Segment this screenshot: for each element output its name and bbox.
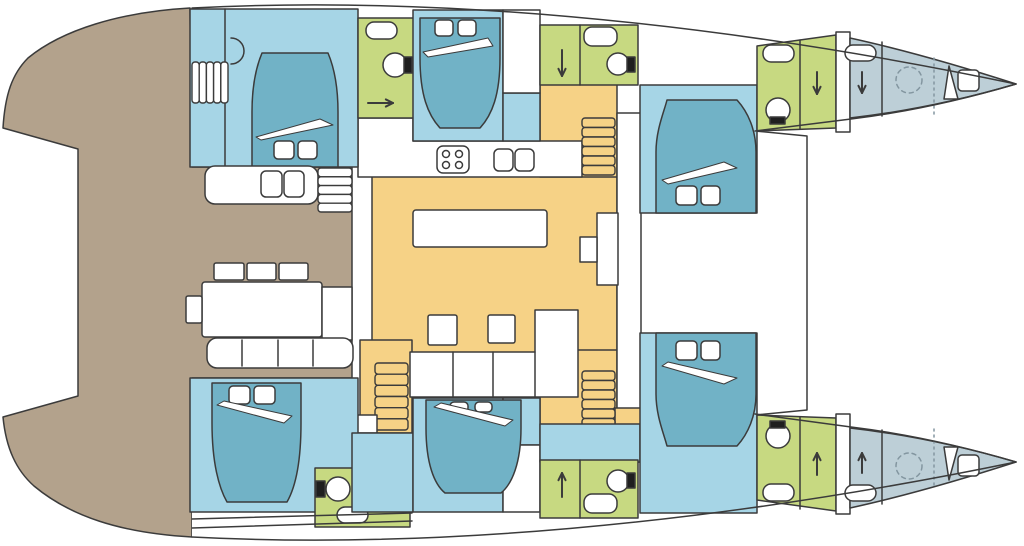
dinette-chair — [247, 263, 276, 280]
dinette-bench — [207, 338, 353, 368]
pillow-icon — [274, 141, 294, 159]
pillow-icon — [676, 186, 697, 205]
dinette-cabinet — [322, 287, 352, 340]
stairs-starboard-aft-tread — [375, 408, 408, 419]
cockpit-steps-tread — [318, 177, 352, 186]
landing-floor — [540, 424, 640, 462]
toilet-tank-icon — [404, 57, 412, 73]
stairs-starboard-fwd-tread — [582, 409, 615, 419]
cockpit-steps-tread — [318, 168, 352, 177]
transom-steps-tread — [206, 62, 213, 103]
salon-table — [413, 210, 547, 247]
closet — [503, 10, 540, 93]
bridgedeck-front-edge — [755, 131, 807, 415]
stairs-port-hull — [582, 118, 615, 175]
pillow-icon — [298, 141, 317, 159]
cockpit-steps-tread — [318, 194, 352, 203]
burner-icon — [456, 162, 463, 169]
mid-wall — [617, 113, 641, 410]
dinette-chair — [186, 296, 202, 323]
stairs-starboard-aft-tread — [375, 363, 408, 374]
stairs-port-hull-tread — [582, 118, 615, 128]
transom-steps-tread — [221, 62, 228, 103]
bench-cushion — [284, 171, 304, 197]
pillow-icon — [435, 20, 453, 36]
pillow-icon — [701, 186, 720, 205]
sink-icon — [763, 484, 794, 501]
pillow-icon — [475, 402, 492, 412]
catamaran-floor-plan — [0, 0, 1024, 546]
sink-icon — [584, 494, 617, 513]
stairs-port-hull-tread — [582, 137, 615, 147]
bench-cushion — [261, 171, 282, 197]
toilet-tank-icon — [770, 421, 785, 428]
toilet-tank-icon — [770, 117, 785, 124]
burner-icon — [443, 151, 450, 158]
transom-steps-tread — [199, 62, 206, 103]
dinette-chair — [279, 263, 308, 280]
stairs-starboard-fwd-tread — [582, 381, 615, 391]
dinette-chair — [214, 263, 244, 280]
corridor-stbd — [352, 433, 413, 512]
toilet-icon — [607, 470, 629, 492]
cockpit-steps-tread — [318, 203, 352, 212]
stairs-starboard-fwd — [582, 371, 615, 428]
nav-seat — [580, 237, 597, 262]
transom-steps-tread — [214, 62, 221, 103]
stairs-starboard-aft-tread — [375, 385, 408, 396]
pillow-icon — [701, 341, 720, 360]
cabin-fwd-port-floor — [503, 93, 540, 141]
stairs-port-hull-tread — [582, 156, 615, 166]
sink-icon — [763, 45, 794, 62]
salon-chair — [428, 315, 457, 345]
stairs-starboard-aft-tread — [375, 419, 408, 430]
stair-foot-pad — [357, 415, 377, 433]
stairs-starboard-fwd-tread — [582, 390, 615, 400]
nav-desk — [597, 213, 618, 285]
toilet-tank-icon — [627, 473, 635, 488]
salon-chair — [488, 315, 515, 343]
galley-sink-icon — [515, 149, 534, 171]
pillow-icon — [229, 386, 250, 404]
catamaran-deck-floor-plan — [0, 0, 1024, 546]
stairs-starboard-aft-tread — [375, 374, 408, 385]
galley-sink-icon — [494, 149, 513, 171]
sink-icon — [584, 27, 617, 46]
bed-aft-port — [252, 53, 338, 167]
stairs-starboard-aft-tread — [375, 397, 408, 408]
stairs-starboard-fwd-tread — [582, 400, 615, 410]
stairs-starboard-aft — [375, 363, 408, 430]
cockpit-steps — [318, 168, 352, 212]
toilet-icon — [326, 477, 350, 501]
transom-steps — [192, 62, 228, 103]
stairs-port-hull-tread — [582, 128, 615, 138]
cockpit-steps-tread — [318, 186, 352, 195]
burner-icon — [456, 151, 463, 158]
toilet-tank-icon — [316, 481, 325, 497]
stairs-starboard-fwd-tread — [582, 371, 615, 381]
pillow-icon — [458, 20, 476, 36]
stairs-port-hull-tread — [582, 166, 615, 176]
stairs-port-hull-tread — [582, 147, 615, 157]
burner-icon — [443, 162, 450, 169]
pillow-icon — [676, 341, 697, 360]
stove-icon — [437, 146, 469, 173]
pillow-icon — [254, 386, 275, 404]
transom-steps-tread — [192, 62, 199, 103]
toilet-tank-icon — [627, 57, 635, 72]
dinette-table — [202, 282, 322, 337]
sink-icon — [366, 22, 397, 39]
toilet-icon — [607, 53, 629, 75]
